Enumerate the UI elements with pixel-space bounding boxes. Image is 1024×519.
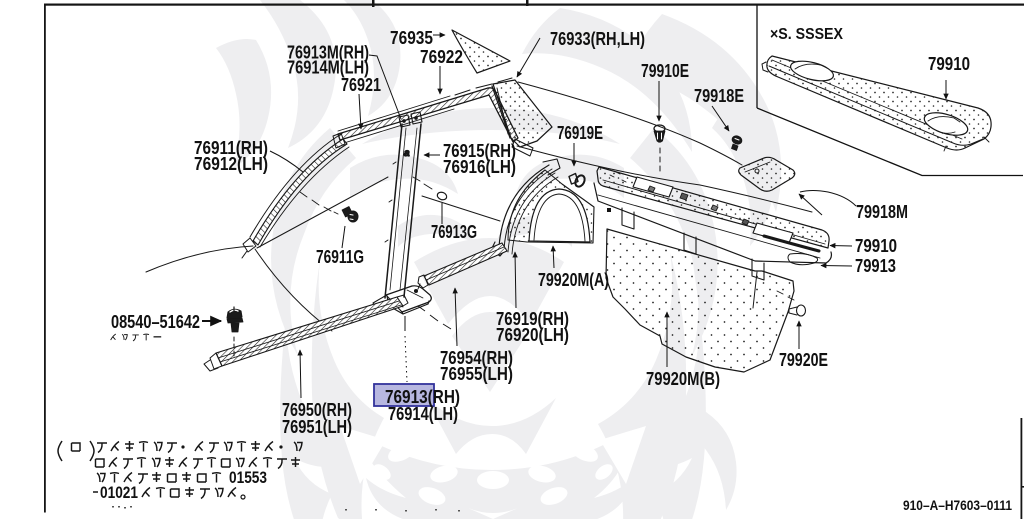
svg-text:76921: 76921 xyxy=(341,75,381,95)
svg-text:79920M(A): 79920M(A) xyxy=(538,270,609,290)
svg-text:76916(LH): 76916(LH) xyxy=(443,157,516,177)
svg-text:910–A–H7603–0111: 910–A–H7603–0111 xyxy=(903,498,1012,513)
svg-text:76935: 76935 xyxy=(390,28,433,48)
svg-text:01021: 01021 xyxy=(100,483,138,502)
svg-text:79918M: 79918M xyxy=(856,202,908,222)
svg-text:76919E: 76919E xyxy=(557,123,603,143)
svg-text:79913: 79913 xyxy=(855,256,896,276)
svg-text:×S. SSSEX: ×S. SSSEX xyxy=(770,26,843,43)
svg-text:76914(LH): 76914(LH) xyxy=(388,404,458,424)
svg-text:76951(LH): 76951(LH) xyxy=(282,417,352,437)
svg-text:76913G: 76913G xyxy=(431,222,477,242)
svg-text:79920M(B): 79920M(B) xyxy=(646,369,720,389)
svg-text:76920(LH): 76920(LH) xyxy=(496,325,569,345)
svg-text:79920E: 79920E xyxy=(779,350,828,370)
svg-text:a: a xyxy=(404,148,410,159)
svg-text:76911G: 76911G xyxy=(316,247,364,267)
svg-text:01553: 01553 xyxy=(229,468,267,487)
svg-text:76922: 76922 xyxy=(420,47,463,67)
svg-text:08540–51642: 08540–51642 xyxy=(111,312,200,332)
svg-text:79910: 79910 xyxy=(928,54,970,74)
svg-text:76912(LH): 76912(LH) xyxy=(194,154,268,174)
svg-text:76955(LH): 76955(LH) xyxy=(440,364,513,384)
svg-text:79910: 79910 xyxy=(855,236,897,256)
svg-text:79910E: 79910E xyxy=(641,61,689,81)
svg-text:76933(RH,LH): 76933(RH,LH) xyxy=(550,29,645,49)
svg-text:79918E: 79918E xyxy=(694,86,744,106)
